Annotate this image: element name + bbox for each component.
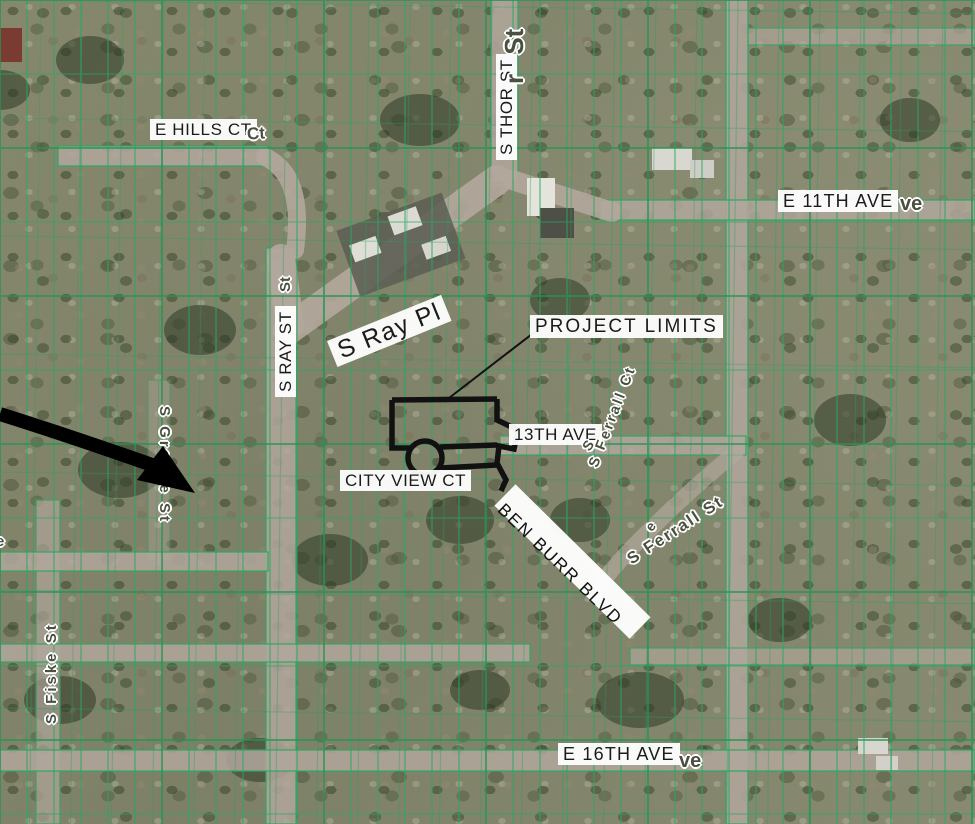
project-corridor-bottom (441, 465, 497, 468)
street-label-city-view-ct: CITY VIEW CT (340, 470, 471, 491)
street-label-overlap-thor: r St (500, 29, 529, 84)
street-label-e-11th-ave: E 11TH AVE (778, 190, 898, 212)
street-label-overlap-ray: St (278, 277, 295, 292)
street-label-overlap-ct: Ct (246, 123, 265, 143)
block-outlines (0, 0, 975, 824)
project-outline-top (392, 399, 497, 400)
map-graphics (0, 0, 975, 824)
street-label-overlap-16th: ve (679, 750, 701, 772)
street-label-e-16th-ave: E 16TH AVE (558, 743, 680, 765)
street-label-s-greene-st: S Greene St (155, 406, 172, 524)
project-corridor-top (440, 445, 497, 447)
street-label-s-fiske-st: S Fiske St (44, 622, 61, 724)
street-label-s-ray-st: S RAY ST (275, 306, 296, 397)
annotation-project-limits: PROJECT LIMITS (530, 315, 723, 338)
aerial-map: E HILLS CT Ct S THOR ST r St E 11TH AVE … (0, 0, 975, 824)
street-label-overlap-11th: ve (900, 193, 922, 215)
street-label-e-hills-ct: E HILLS CT (150, 119, 257, 140)
street-label-edge-fragment: e (0, 534, 4, 551)
